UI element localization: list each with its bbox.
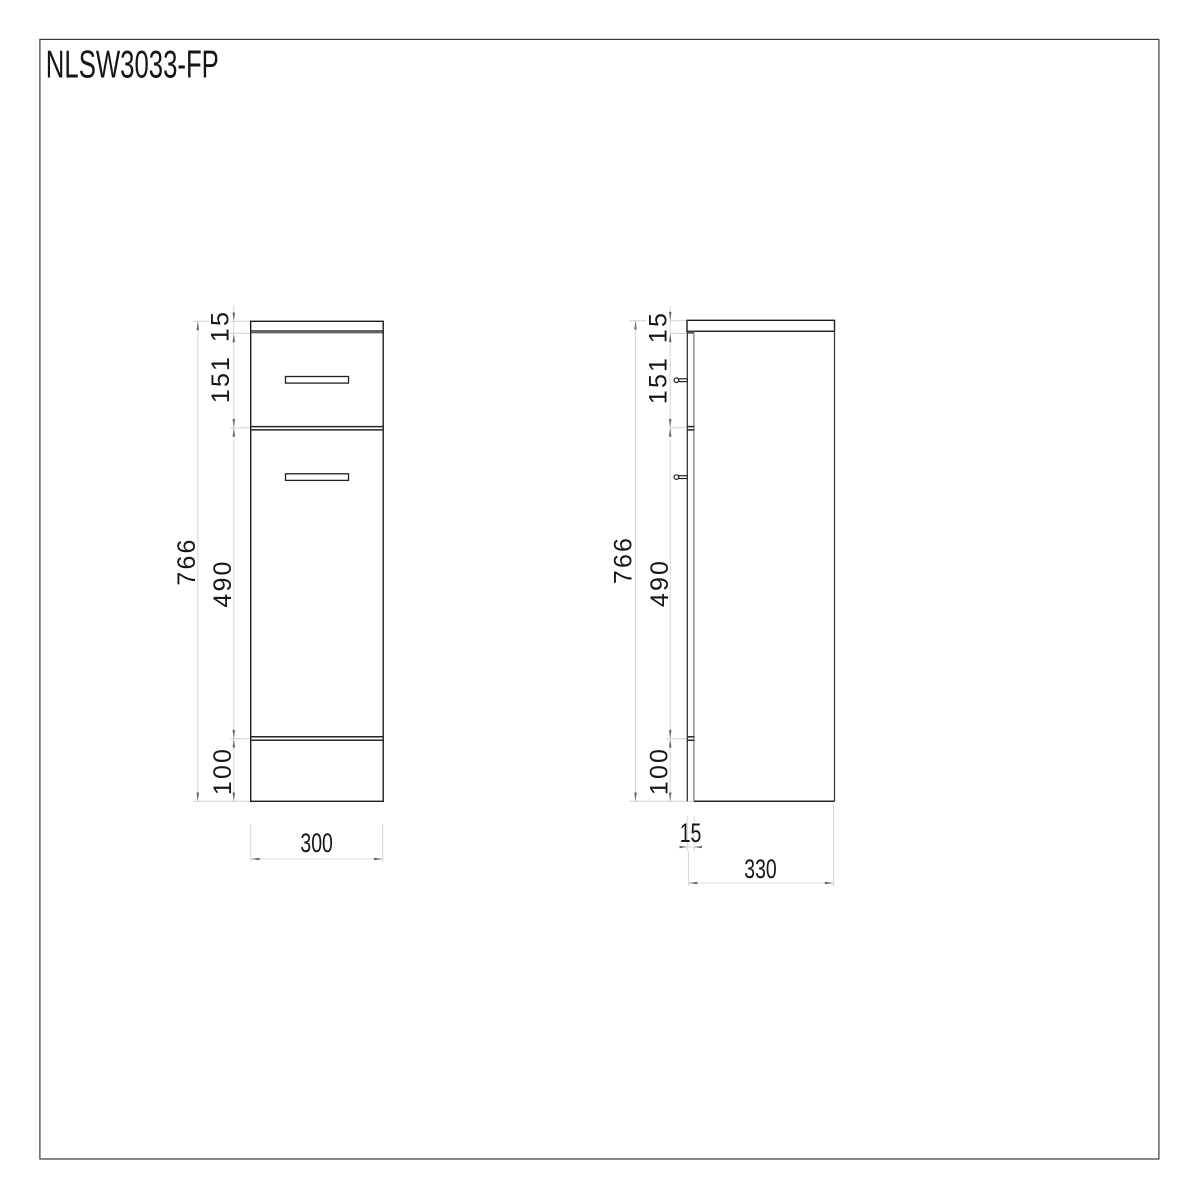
svg-text:15: 15: [645, 311, 673, 343]
svg-text:490: 490: [646, 559, 674, 607]
svg-text:15: 15: [207, 310, 235, 342]
svg-text:766: 766: [610, 536, 638, 584]
svg-text:15: 15: [680, 818, 702, 848]
svg-text:766: 766: [173, 537, 201, 585]
svg-text:NLSW3033-FP: NLSW3033-FP: [46, 43, 219, 87]
svg-text:300: 300: [300, 828, 332, 858]
svg-text:151: 151: [645, 356, 673, 404]
svg-text:151: 151: [207, 355, 235, 403]
svg-text:100: 100: [646, 747, 674, 795]
svg-text:100: 100: [209, 747, 237, 795]
svg-text:330: 330: [744, 854, 776, 884]
svg-text:490: 490: [209, 559, 237, 607]
